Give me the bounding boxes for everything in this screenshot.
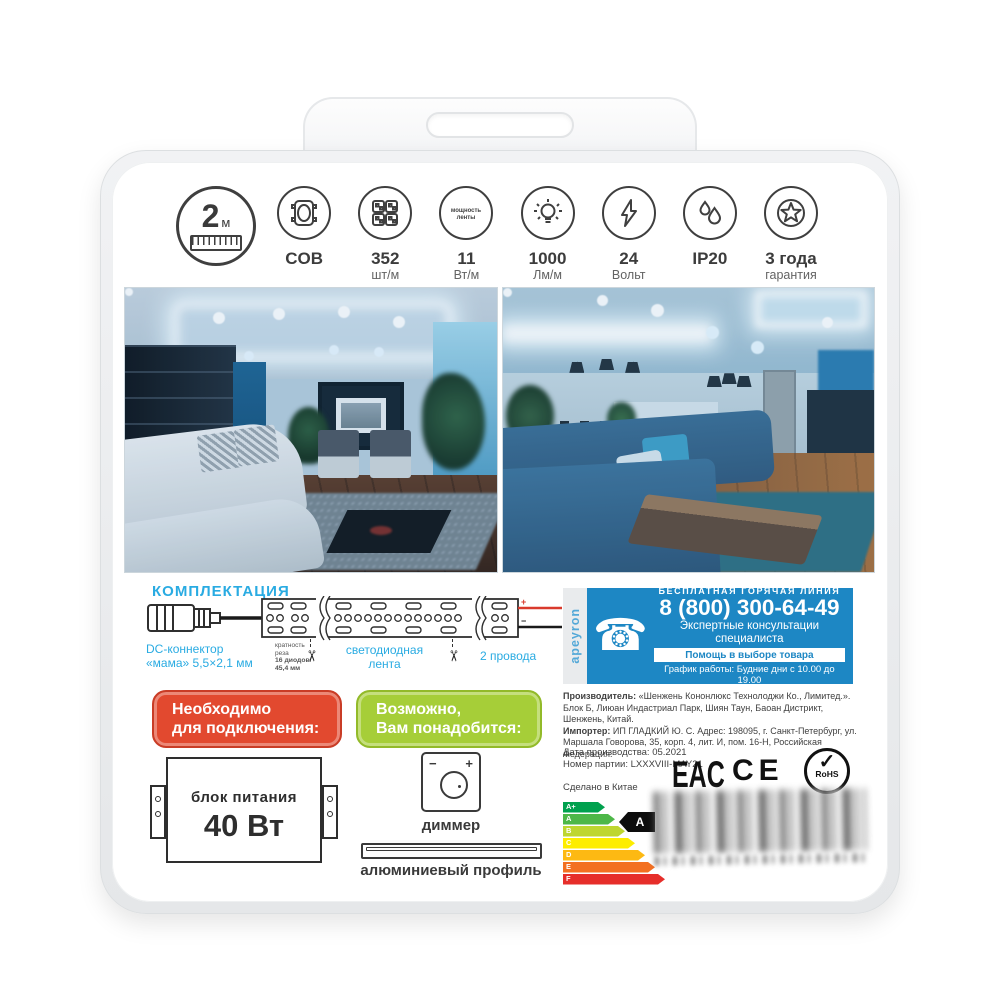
photo-wood-floor [503, 453, 875, 572]
energy-row: D [563, 850, 645, 861]
led-strip-label: светодиоднаялента [322, 643, 447, 671]
spec-density: 352 шт/м [346, 186, 424, 283]
lumen-value: 1000 [509, 249, 587, 268]
photo-bookshelf [125, 345, 236, 521]
room-photos [124, 287, 875, 573]
hotline-number: 8 (800) 300-64-49 [654, 596, 845, 620]
dimmer-plus: + [465, 756, 473, 771]
psu-power: 40 Вт [168, 808, 320, 844]
photo-pillow [641, 433, 690, 483]
package-card: 2 м COB [112, 162, 888, 902]
hotline-badge: Помощь в выборе товара [654, 648, 845, 662]
profile-label: алюминиевый профиль [326, 862, 576, 879]
photo-dining-chairs [540, 421, 637, 458]
photo-armchair [318, 430, 359, 478]
voltage-unit: Вольт [590, 268, 668, 283]
photo-pendant-lamp [707, 376, 722, 387]
photo-sofa [124, 419, 308, 538]
spec-ip: IP20 [671, 186, 749, 268]
photo-pendant-lamp [737, 376, 752, 387]
length-value: 2 [202, 201, 220, 231]
photo-plant [607, 402, 637, 436]
ce-mark: CE [732, 754, 784, 788]
svg-text:+: + [521, 597, 526, 607]
photo-decor-plate [370, 526, 392, 535]
power-unit: Вт/м [427, 268, 505, 283]
hotline-schedule: График работы: Будние дни с 10.00 до 19.… [654, 664, 845, 686]
euro-slot-hole [426, 112, 574, 138]
power-value: 11 [427, 249, 505, 268]
photo-led-panel [755, 291, 866, 328]
hotline-subtitle: Экспертные консультации специалиста [654, 620, 845, 646]
photo-wall [229, 379, 433, 481]
spec-power: мощность ленты 11 Вт/м [427, 186, 505, 283]
cob-value: COB [265, 249, 343, 268]
ruler-glyph [190, 235, 242, 251]
spec-cob: COB [265, 186, 343, 268]
photo-plant [506, 385, 554, 447]
dc-connector-label: DC-коннектор«мама» 5,5×2,1 мм [146, 642, 253, 670]
lightning-icon [602, 186, 656, 240]
photo-sofa-seat [124, 493, 326, 573]
photo-led-cove [173, 302, 452, 359]
photo-blue-sofa [502, 409, 776, 500]
dimmer-minus: − [429, 756, 437, 771]
rohs-mark: ✓ RoHS [804, 748, 850, 794]
aluminum-profile-drawing [361, 843, 542, 859]
psu-mount-tab [322, 785, 338, 839]
ip-value: IP20 [671, 249, 749, 268]
lumen-unit: Лм/м [509, 268, 587, 283]
photo-pendant-lamp [569, 362, 584, 373]
hotline-block: apeyron ☎ БЕСПЛАТНАЯ ГОРЯЧАЯ ЛИНИЯ 8 (80… [563, 588, 853, 684]
photo-rug [264, 493, 498, 570]
star-badge-icon [764, 186, 818, 240]
scissors-icon: ✂ [300, 639, 320, 665]
photo-wall-frame [318, 382, 403, 450]
photo-wood-table [627, 494, 823, 565]
energy-row: C [563, 838, 635, 849]
energy-row: F [563, 874, 665, 885]
voltage-value: 24 [590, 249, 668, 268]
bulb-icon [521, 186, 575, 240]
barcode-bars [653, 788, 866, 854]
photo-coffee-table [326, 510, 451, 553]
spec-warranty: 3 года гарантия [752, 186, 830, 283]
room-photo-right [502, 287, 876, 573]
photo-cushion [234, 425, 280, 467]
photo-blue-panel [818, 350, 874, 395]
phone-icon: ☎ [593, 614, 648, 658]
photo-wood-floor [125, 475, 497, 572]
photo-palm [422, 373, 485, 470]
room-photo-left [124, 287, 498, 573]
barcode-blurred [653, 788, 866, 874]
photo-cushion [197, 430, 243, 472]
blister-package-back: 2 м COB [100, 150, 900, 914]
photo-window [433, 322, 496, 487]
photo-blue-panel [233, 362, 266, 487]
kit-diagram: + − [140, 596, 564, 646]
led-chips-icon [358, 186, 412, 240]
photo-wall [503, 373, 875, 470]
photo-pillow [615, 449, 664, 488]
dimmer-knob [440, 771, 468, 799]
svg-text:ленты: ленты [457, 215, 476, 221]
psu-mount-tab [150, 785, 166, 839]
length-ruler-icon: 2 м [176, 186, 256, 266]
energy-row: B [563, 826, 625, 837]
photo-spotlights [503, 288, 512, 297]
photo-pendant-lamp [722, 373, 737, 384]
made-in: Сделано в Китае [563, 782, 638, 793]
energy-row: E [563, 862, 655, 873]
required-badge: Необходимодля подключения: [152, 690, 342, 748]
density-value: 352 [346, 249, 424, 268]
wires-label: 2 провода [480, 649, 536, 663]
energy-row: A [563, 814, 615, 825]
photo-ceiling [503, 288, 875, 379]
photo-door [763, 370, 796, 467]
photo-pendant-lamp [625, 362, 640, 373]
barcode-digits [654, 853, 866, 866]
energy-class-arrow: A [619, 812, 655, 832]
photo-pendant-lamp [599, 359, 614, 370]
dimmer-drawing: − + [421, 752, 481, 812]
cob-chip-icon [277, 186, 331, 240]
photo-teal-rug [646, 492, 875, 572]
photo-media-unit [807, 390, 874, 470]
psu-label: блок питания [168, 789, 320, 806]
svg-text:−: − [521, 616, 526, 626]
photo-armchair [370, 430, 411, 478]
photo-plant [288, 407, 329, 464]
blister-hang-tab [303, 97, 697, 157]
optional-badge: Возможно,Вам понадобится: [356, 690, 542, 748]
power-supply-drawing: блок питания 40 Вт [166, 757, 322, 863]
brand-logo: apeyron [568, 608, 582, 664]
spec-length: 2 м [170, 186, 262, 275]
svg-text:мощность: мощность [451, 208, 482, 214]
spec-voltage: 24 Вольт [590, 186, 668, 283]
photo-blue-sofa-seat [502, 458, 722, 573]
strip-power-icon: мощность ленты [439, 186, 493, 240]
length-unit: м [221, 215, 230, 230]
hotline-panel: ☎ БЕСПЛАТНАЯ ГОРЯЧАЯ ЛИНИЯ 8 (800) 300-6… [587, 588, 853, 684]
warranty-unit: гарантия [752, 268, 830, 283]
warranty-value: 3 года [752, 249, 830, 268]
spec-lumen: 1000 Лм/м [509, 186, 587, 283]
water-drops-icon [683, 186, 737, 240]
photo-kitchen [614, 402, 718, 464]
spec-icons-row: 2 м COB [170, 186, 830, 290]
energy-row: A+ [563, 802, 605, 813]
density-unit: шт/м [346, 268, 424, 283]
photo-led-cove [503, 325, 711, 342]
photo-spotlights [125, 288, 133, 296]
dimmer-label: диммер [406, 817, 496, 834]
brand-strip: apeyron [563, 588, 587, 684]
photo-ceiling [125, 288, 497, 402]
